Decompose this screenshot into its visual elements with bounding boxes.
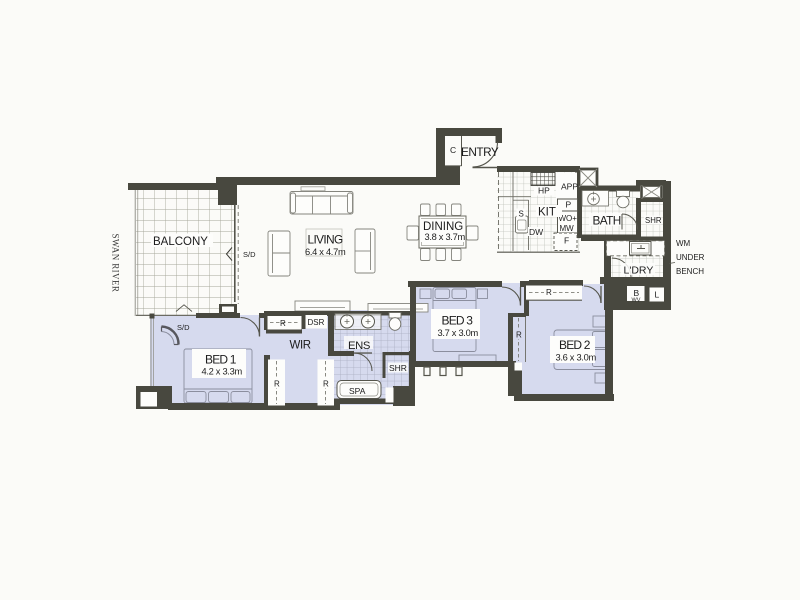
svg-text:KIT: KIT — [538, 207, 556, 219]
svg-text:3.6 x 3.0m: 3.6 x 3.0m — [556, 353, 597, 363]
svg-text:C: C — [450, 145, 456, 155]
svg-text:MW: MW — [560, 224, 575, 233]
svg-text:SPA: SPA — [349, 386, 366, 396]
svg-text:ENTRY: ENTRY — [461, 145, 499, 159]
svg-text:6.4 x 4.7m: 6.4 x 4.7m — [305, 247, 346, 257]
svg-text:APP: APP — [561, 182, 578, 192]
svg-text:BENCH: BENCH — [676, 267, 704, 276]
svg-text:WV: WV — [632, 298, 641, 304]
svg-text:S/D: S/D — [177, 323, 190, 332]
svg-text:UNDER: UNDER — [676, 253, 705, 262]
svg-text:P: P — [566, 200, 572, 210]
svg-text:S/D: S/D — [243, 250, 256, 259]
svg-text:BALCONY: BALCONY — [153, 236, 208, 248]
svg-text:R: R — [516, 331, 522, 340]
svg-text:SWAN RIVER: SWAN RIVER — [111, 234, 121, 293]
svg-text:R: R — [546, 288, 552, 297]
svg-text:R: R — [323, 380, 329, 389]
svg-text:SHR: SHR — [389, 363, 407, 373]
svg-text:WIR: WIR — [290, 340, 311, 352]
svg-text:F: F — [564, 236, 569, 246]
svg-text:3.7 x 3.0m: 3.7 x 3.0m — [438, 328, 479, 338]
svg-text:WM: WM — [676, 239, 691, 248]
svg-text:L: L — [655, 290, 660, 300]
svg-text:BED 3: BED 3 — [442, 314, 474, 328]
svg-text:ENS: ENS — [348, 340, 371, 352]
svg-text:BED 2: BED 2 — [559, 338, 591, 352]
svg-text:3.8 x 3.7m: 3.8 x 3.7m — [425, 232, 466, 242]
svg-text:SHR: SHR — [645, 216, 662, 225]
svg-text:HP: HP — [538, 186, 550, 196]
svg-text:4.2 x 3.3m: 4.2 x 3.3m — [202, 367, 243, 377]
svg-text:S: S — [519, 210, 524, 219]
svg-text:BATH: BATH — [593, 214, 621, 228]
svg-text:R: R — [274, 380, 280, 389]
svg-text:BED 1: BED 1 — [205, 353, 237, 367]
svg-text:DSR: DSR — [308, 318, 325, 327]
svg-text:DW: DW — [529, 227, 543, 237]
svg-text:L'DRY: L'DRY — [624, 265, 654, 277]
svg-text:R: R — [280, 319, 286, 328]
svg-text:B: B — [634, 288, 640, 298]
svg-text:LIVING: LIVING — [308, 233, 344, 247]
